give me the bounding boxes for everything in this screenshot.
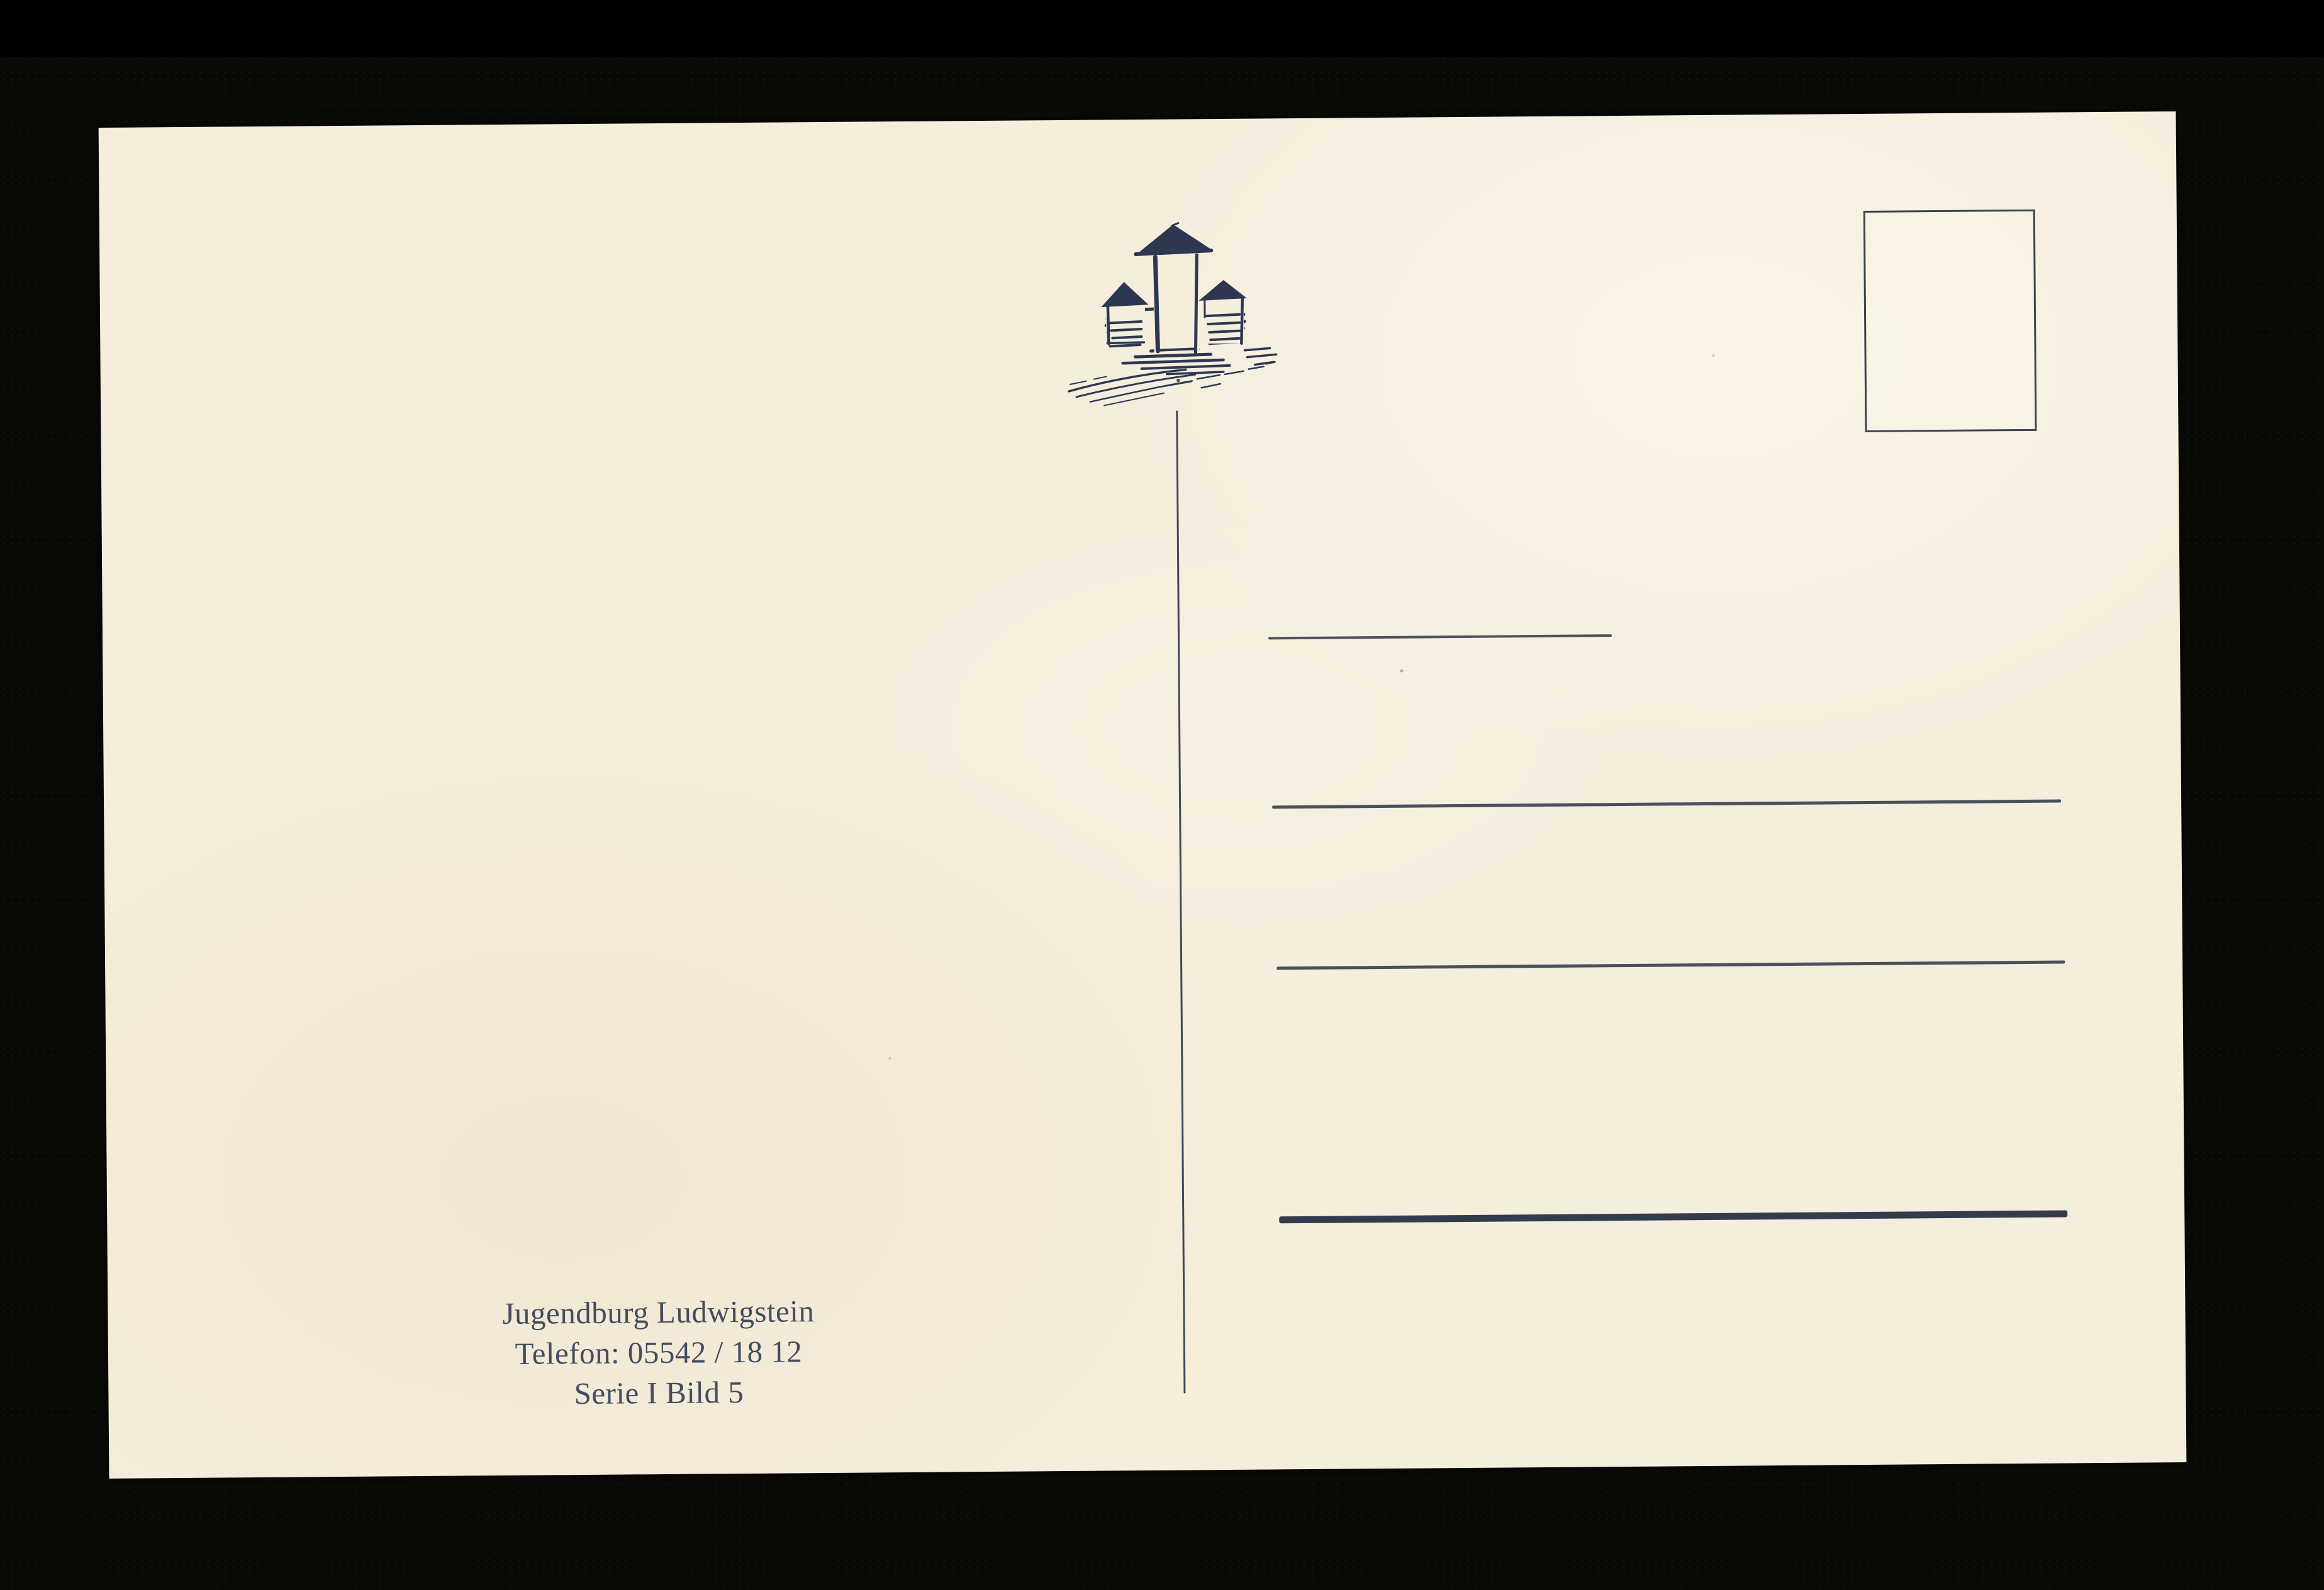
publisher-series: Serie I Bild 5 bbox=[470, 1372, 847, 1415]
postcard-back: Jugendburg Ludwigstein Telefon: 05542 / … bbox=[99, 111, 2187, 1479]
address-line-3 bbox=[1277, 960, 2065, 970]
address-line-4-thick bbox=[1279, 1210, 2067, 1223]
publisher-phone: Telefon: 05542 / 18 12 bbox=[470, 1331, 847, 1375]
publisher-imprint: Jugendburg Ludwigstein Telefon: 05542 / … bbox=[469, 1291, 847, 1415]
address-line-1 bbox=[1268, 634, 1612, 639]
publisher-name: Jugendburg Ludwigstein bbox=[469, 1291, 847, 1335]
dust-speck bbox=[888, 1057, 891, 1060]
castle-logo-icon bbox=[1065, 221, 1280, 411]
address-line-2 bbox=[1272, 800, 2061, 809]
stamp-box bbox=[1863, 210, 2037, 432]
dust-speck bbox=[1400, 669, 1403, 673]
dust-speck bbox=[1712, 354, 1715, 357]
message-address-divider-line bbox=[1176, 411, 1185, 1394]
